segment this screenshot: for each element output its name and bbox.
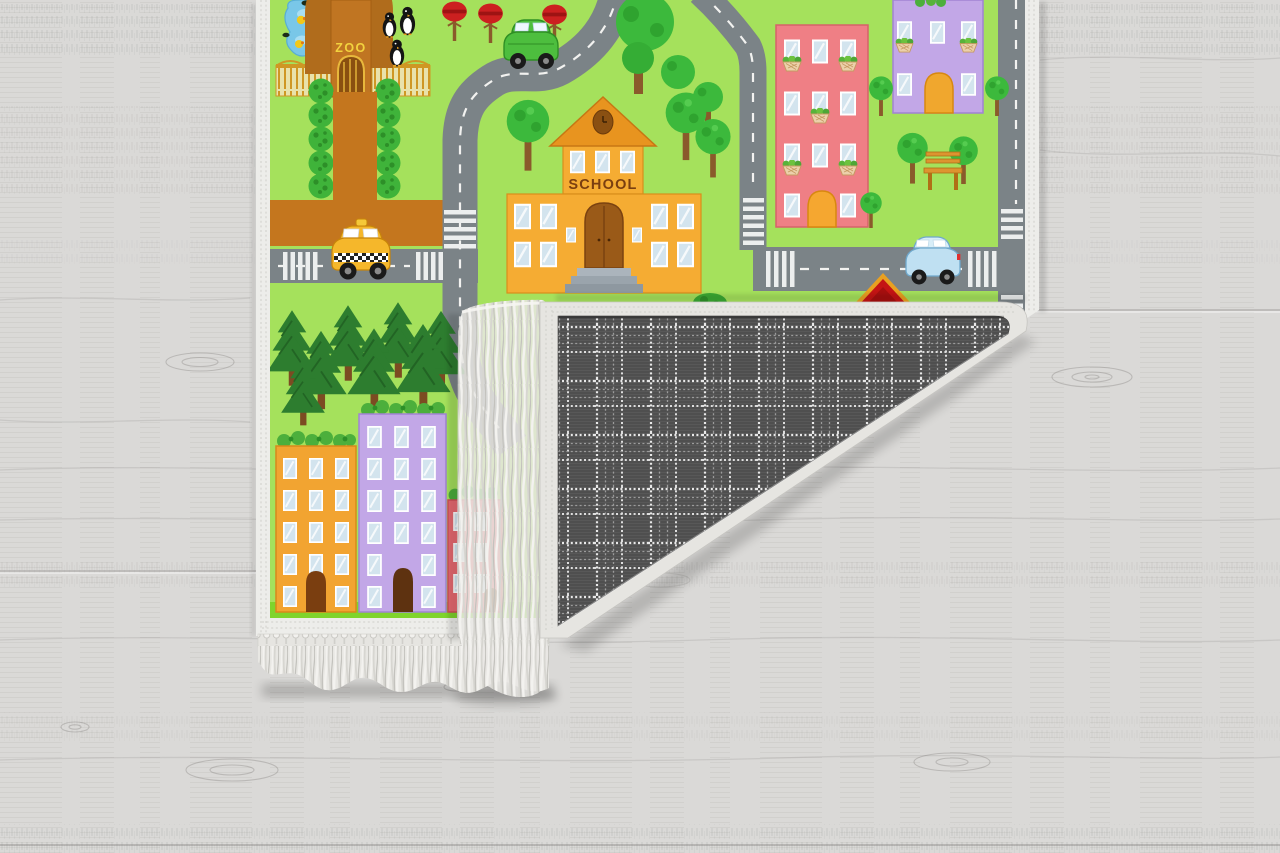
pink-apartment-door	[808, 191, 836, 227]
purple-building-door	[393, 568, 413, 612]
orange-building-door	[306, 571, 326, 612]
zoo-sign: ZOO	[335, 41, 367, 55]
purple-house-door	[925, 73, 953, 113]
taxi-checker-band	[334, 253, 388, 262]
small-bird	[282, 33, 289, 37]
school-sign: SCHOOL	[568, 177, 637, 193]
product-photo: ZOO	[0, 0, 1280, 853]
purple-apartment-building	[359, 400, 446, 612]
zoo-gate	[338, 56, 364, 97]
fold-fringe	[448, 300, 548, 697]
orange-apartment-building	[276, 431, 356, 612]
pink-apartment	[776, 25, 868, 227]
scene-svg: ZOO	[0, 0, 1280, 853]
